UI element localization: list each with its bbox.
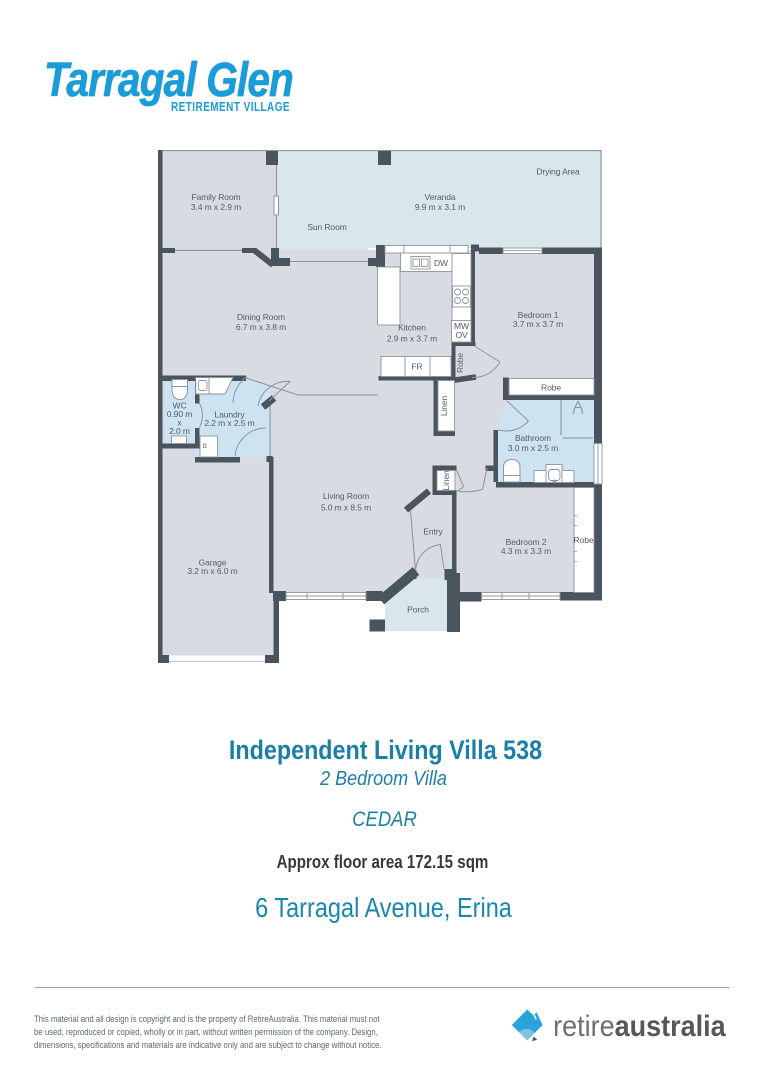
svg-text:Linen: Linen: [441, 470, 451, 491]
svg-text:2.0 m: 2.0 m: [169, 426, 190, 436]
svg-text:Robe: Robe: [541, 383, 561, 393]
svg-text:3.2 m x 6.0 m: 3.2 m x 6.0 m: [187, 566, 237, 576]
svg-text:Drying Area: Drying Area: [536, 167, 580, 177]
svg-text:DW: DW: [434, 258, 448, 268]
svg-text:Linen: Linen: [439, 395, 449, 416]
svg-text:4.3 m x 3.3 m: 4.3 m x 3.3 m: [501, 546, 551, 556]
svg-text:Veranda: Veranda: [425, 192, 456, 202]
svg-text:Entry: Entry: [423, 527, 443, 537]
svg-text:3.0 m x 2.5 m: 3.0 m x 2.5 m: [508, 443, 558, 453]
svg-text:2.9 m x 3.7 m: 2.9 m x 3.7 m: [387, 334, 437, 344]
svg-text:retireaustralia: retireaustralia: [553, 1010, 727, 1044]
svg-text:OV: OV: [455, 330, 468, 340]
svg-text:5.0 m x 8.5 m: 5.0 m x 8.5 m: [321, 503, 371, 513]
svg-text:Living Room: Living Room: [323, 491, 369, 501]
svg-text:Family Room: Family Room: [192, 192, 241, 202]
svg-text:Dining Room: Dining Room: [237, 312, 285, 322]
svg-text:3.7 m x 3.7 m: 3.7 m x 3.7 m: [513, 319, 563, 329]
svg-text:Robe: Robe: [455, 353, 465, 373]
svg-text:2.2 m x 2.5 m: 2.2 m x 2.5 m: [204, 418, 254, 428]
svg-text:Robe: Robe: [574, 535, 594, 545]
svg-text:Porch: Porch: [407, 605, 429, 615]
svg-text:FR: FR: [411, 362, 422, 372]
svg-text:6.7 m x 3.8 m: 6.7 m x 3.8 m: [236, 322, 286, 332]
svg-text:9.9 m x 3.1 m: 9.9 m x 3.1 m: [415, 202, 465, 212]
svg-text:Kitchen: Kitchen: [398, 323, 426, 333]
svg-text:3.4 m x 2.9 m: 3.4 m x 2.9 m: [191, 202, 241, 212]
svg-text:Bathroom: Bathroom: [515, 433, 551, 443]
svg-text:Sun Room: Sun Room: [307, 222, 346, 232]
